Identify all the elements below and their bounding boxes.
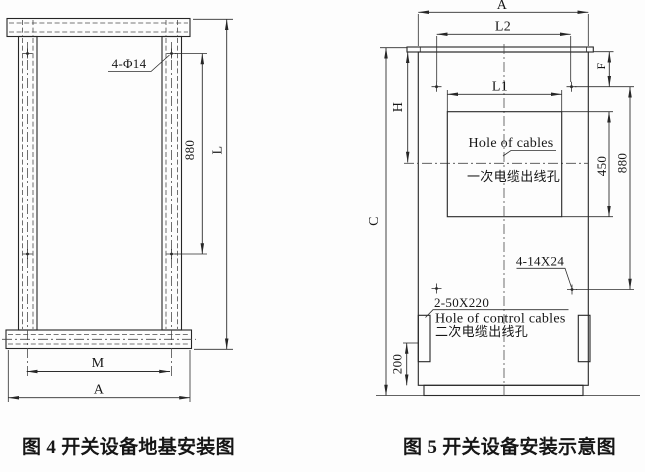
fig4-dim-880: 880 bbox=[175, 54, 207, 255]
fig5-cable-hole-label-en: Hole of cables bbox=[468, 136, 553, 151]
figure4-foundation-drawing: 880 L M A 4-Φ14 图 4 开关设备地基安装图 bbox=[2, 19, 235, 459]
fig5-dim-L1: L1 bbox=[447, 80, 561, 95]
fig5-dim-A-label: A bbox=[497, 0, 508, 13]
fig4-dim-L: L bbox=[193, 19, 233, 349]
hole-marker bbox=[432, 284, 442, 294]
fig4-dim-M: M bbox=[27, 356, 170, 372]
fig5-dim-880: 880 bbox=[576, 87, 634, 290]
fig5-dim-450: 450 bbox=[594, 112, 609, 217]
fig5-dim-200-label: 200 bbox=[390, 354, 405, 374]
fig4-holes-callout: 4-Φ14 bbox=[108, 55, 170, 72]
fig5-cable-hole-label-zh: 一次电缆出线孔 bbox=[467, 169, 560, 184]
fig4-top-bar bbox=[7, 19, 190, 37]
fig5-centerlines bbox=[404, 44, 589, 399]
fig5-dim-H: H bbox=[391, 52, 408, 162]
hole-marker bbox=[23, 49, 33, 59]
fig5-mount-holes-callout: 4-14X24 bbox=[516, 254, 572, 288]
fig5-mount-holes-label: 4-14X24 bbox=[516, 254, 565, 269]
figure4-caption: 图 4 开关设备地基安装图 bbox=[22, 435, 235, 458]
fig5-dim-200: 200 bbox=[390, 343, 420, 385]
fig5-dim-H-label: H bbox=[391, 102, 406, 112]
fig5-control-hole-label-zh: 二次电缆出线孔 bbox=[435, 324, 528, 339]
hole-marker bbox=[567, 285, 577, 295]
fig5-dim-880-label: 880 bbox=[615, 153, 630, 173]
fig5-dim-F-label: F bbox=[594, 62, 608, 69]
hole-marker bbox=[23, 249, 33, 259]
fig4-centerlines bbox=[2, 42, 196, 378]
figure5-caption: 图 5 开关设备安装示意图 bbox=[403, 435, 616, 458]
figure5-cabinet-drawing: Hole of cables 一次电缆出线孔 2-50X220 Hole of … bbox=[367, 0, 640, 458]
fig5-cable-hole-rect bbox=[447, 112, 561, 217]
fig5-dim-L2-label: L2 bbox=[495, 20, 511, 35]
fig4-dim-A-label: A bbox=[94, 383, 105, 398]
fig5-dim-C: C bbox=[367, 48, 407, 396]
fig4-holes-callout-label: 4-Φ14 bbox=[112, 56, 147, 71]
fig5-left-slot bbox=[418, 315, 430, 361]
fig5-base-plinth bbox=[424, 385, 583, 395]
fig5-dim-450-label: 450 bbox=[594, 156, 609, 176]
drawing-page: 880 L M A 4-Φ14 图 4 开关设备地基安装图 bbox=[0, 0, 645, 472]
fig4-dim-880-label: 880 bbox=[182, 140, 197, 160]
fig5-dim-C-label: C bbox=[367, 216, 382, 226]
hole-marker bbox=[432, 82, 442, 92]
fig4-dim-M-label: M bbox=[92, 356, 105, 371]
fig5-dim-L1-label: L1 bbox=[492, 80, 508, 95]
fig5-top-plate bbox=[407, 47, 593, 52]
drawing-canvas: 880 L M A 4-Φ14 图 4 开关设备地基安装图 bbox=[0, 0, 645, 472]
fig5-control-slots-label: 2-50X220 bbox=[434, 295, 489, 310]
fig5-dim-F: F bbox=[575, 52, 634, 87]
fig4-anchor-holes bbox=[23, 49, 177, 260]
fig4-dim-L-label: L bbox=[211, 146, 226, 155]
